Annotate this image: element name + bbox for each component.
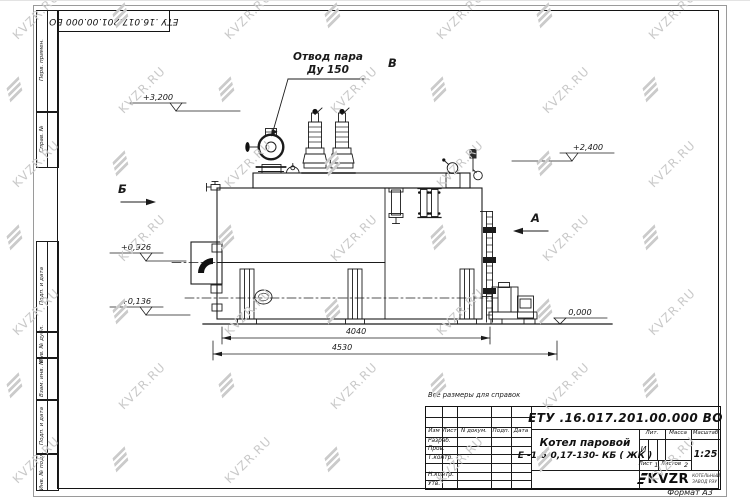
col-header-podp: Подп. <box>491 429 511 435</box>
row-label-prov: Пров. <box>428 447 445 453</box>
elevation-0926: +0,926 <box>108 243 164 251</box>
view-arrow-a <box>513 228 548 234</box>
company-subtext: КОТЕЛЬНЫЙ ЗАВОД РЭУ <box>692 474 720 484</box>
grid-line <box>457 407 458 489</box>
elevation-0000: 0,000 <box>552 308 608 316</box>
grid-line <box>657 439 658 460</box>
grid-line <box>426 463 531 464</box>
col-header-list: Лист <box>442 429 457 435</box>
steam-outlet-valve <box>245 129 285 174</box>
callout-otvod-para: Отвод пара <box>288 52 368 63</box>
grid-line <box>511 407 512 489</box>
product-name-line2: Е -1,6-0,17-130- КБ ( ЖК ) <box>518 452 653 461</box>
dimension-lines <box>213 327 557 360</box>
callout-du150: Ду 150 <box>288 65 368 76</box>
grid-line <box>426 480 531 481</box>
manhole <box>255 290 272 304</box>
view-label-b: Б <box>118 184 127 196</box>
grid-line <box>491 407 492 489</box>
dimension-4530: 4530 <box>322 344 362 352</box>
header-massa: Масса <box>665 431 691 437</box>
elevation-0136: +0,136 <box>108 297 164 305</box>
row-label-utv: Утв. <box>428 482 440 488</box>
support-legs <box>238 269 477 324</box>
dimension-4040: 4040 <box>336 328 376 336</box>
header-masshtab: Масштаб <box>691 431 720 436</box>
company-logo-text: KVZR <box>648 473 690 486</box>
sheet-cell: Лист 1 <box>639 460 658 470</box>
reference-note: Все размеры для справок <box>428 392 520 399</box>
sheet-label: Лист <box>639 462 653 467</box>
lit-value: И <box>639 439 648 460</box>
sheets-value: 2 <box>684 462 688 468</box>
scale-value: 1:25 <box>691 439 720 470</box>
view-label-a: А <box>531 213 540 225</box>
callout-leader-line <box>271 79 368 137</box>
col-header-ndocum: N докум. <box>457 429 491 435</box>
kvzr-spring-logo-icon <box>636 473 648 486</box>
company-subtext-line2: ЗАВОД РЭУ <box>692 480 720 485</box>
elevation-2400: +2,400 <box>560 143 616 151</box>
grid-line <box>426 417 531 418</box>
sheets-label: Листов <box>661 462 681 467</box>
drain-cock <box>207 182 221 192</box>
product-name-line1: Котел паровой <box>540 438 631 449</box>
company-cell: KVZR КОТЕЛЬНЫЙ ЗАВОД РЭУ <box>639 470 720 489</box>
product-name: Котел паровой Е -1,6-0,17-130- КБ ( ЖК ) <box>531 429 639 470</box>
sheets-cell: Листов 2 <box>658 460 691 470</box>
title-block: ЕТУ .16.017.201.00.000 ВО Котел паровой … <box>425 406 721 490</box>
elevation-3200: +3,200 <box>130 93 186 101</box>
drawing-sheet: ЕТУ .16.017.201.00.000 ВО Перв. примен. … <box>0 0 750 501</box>
view-arrow-b <box>121 199 156 205</box>
water-level-gauges <box>389 188 441 224</box>
view-label-v: В <box>388 58 397 70</box>
row-label-razrab: Разраб. <box>428 439 451 445</box>
rear-ladder <box>481 212 497 323</box>
row-label-nkontr: Н.контр. <box>428 473 454 479</box>
header-lit: Лит. <box>639 431 665 437</box>
col-header-izm: Изм <box>426 429 442 435</box>
safety-valve-1 <box>302 108 328 173</box>
row-label-tkontr: Т.контр. <box>428 456 453 462</box>
col-header-data: Дата <box>511 429 531 435</box>
format-note: Формат А3 <box>640 489 740 497</box>
safety-valve-2 <box>329 108 355 173</box>
boiler-outline <box>217 173 482 319</box>
doc-number: ЕТУ .16.017.201.00.000 ВО <box>531 407 720 429</box>
